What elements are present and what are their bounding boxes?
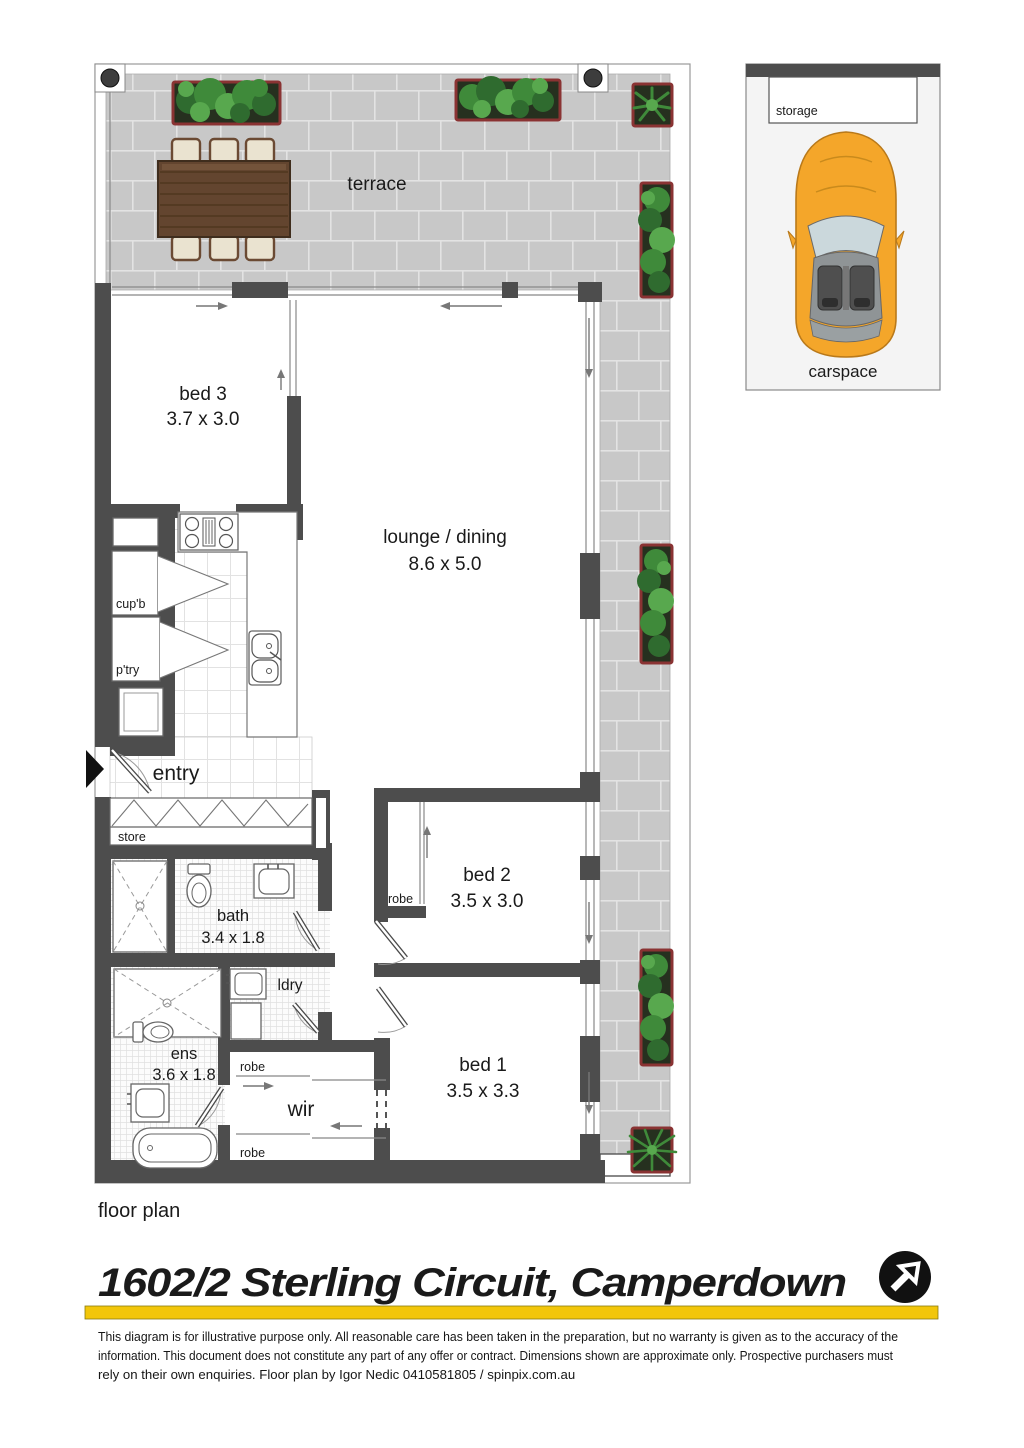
disclaimer-line-2: information. This document does not cons… — [98, 1348, 893, 1363]
label-lounge-dims: 8.6 x 5.0 — [409, 554, 482, 575]
label-bed2-dims: 3.5 x 3.0 — [451, 891, 524, 912]
planter — [456, 76, 560, 120]
label-bed2: bed 2 — [463, 865, 511, 886]
label-bath-dims: 3.4 x 1.8 — [201, 929, 264, 947]
label-ens-dims: 3.6 x 1.8 — [152, 1066, 215, 1084]
label-store: store — [118, 830, 146, 844]
disclaimer-line-3: rely on their own enquiries. Floor plan … — [98, 1367, 575, 1382]
floor-plan-canvas: W — [0, 0, 1024, 1448]
toilet-icon — [133, 1022, 173, 1042]
label-entry: entry — [153, 762, 200, 785]
dining-table-set — [158, 139, 290, 260]
toilet-icon — [187, 864, 211, 907]
label-robe-top: robe — [240, 1060, 265, 1074]
label-robe-bottom: robe — [240, 1146, 265, 1160]
cooktop-icon — [180, 514, 238, 550]
label-wir: wir — [287, 1098, 315, 1121]
planter — [637, 545, 674, 663]
label-ens: ens — [171, 1045, 198, 1063]
planter — [638, 183, 675, 297]
label-bath: bath — [217, 907, 249, 925]
fridge-space — [119, 688, 163, 736]
sink-icon — [249, 631, 281, 685]
floor-plan-page: W — [0, 0, 1024, 1448]
laundry-tub-icon — [226, 969, 266, 999]
address-title: 1602/2 Sterling Circuit, Camperdown — [98, 1261, 846, 1305]
wall-niche — [316, 798, 326, 848]
basin-icon — [254, 864, 294, 898]
label-bed3-dims: 3.7 x 3.0 — [167, 409, 240, 430]
carspace-panel: storage carspace — [746, 64, 940, 390]
label-storage: storage — [776, 104, 818, 118]
label-lounge: lounge / dining — [383, 527, 507, 548]
label-ptry: p'try — [116, 663, 140, 677]
footer: floor plan 1602/2 Sterling Circuit, Camp… — [85, 1200, 938, 1382]
disclaimer-line-1: This diagram is for illustrative purpose… — [98, 1329, 898, 1344]
shower — [113, 861, 167, 952]
basin-icon — [127, 1084, 169, 1122]
agency-logo-icon — [879, 1251, 931, 1303]
plan-caption: floor plan — [98, 1200, 180, 1222]
label-bed1-dims: 3.5 x 3.3 — [447, 1081, 520, 1102]
planter — [638, 950, 674, 1065]
planter — [628, 1128, 676, 1172]
label-terrace: terrace — [347, 174, 406, 195]
planter — [633, 84, 672, 126]
label-ldry: ldry — [278, 977, 303, 994]
cabinet — [113, 518, 158, 546]
accent-bar — [85, 1306, 938, 1319]
label-carspace: carspace — [809, 362, 878, 381]
bathtub-icon — [133, 1128, 217, 1168]
label-cupb: cup'b — [116, 597, 146, 611]
car-illustration — [788, 132, 904, 357]
planter — [173, 78, 280, 124]
label-robe-bed2: robe — [388, 892, 413, 906]
label-bed3: bed 3 — [179, 384, 227, 405]
label-bed1: bed 1 — [459, 1055, 507, 1076]
